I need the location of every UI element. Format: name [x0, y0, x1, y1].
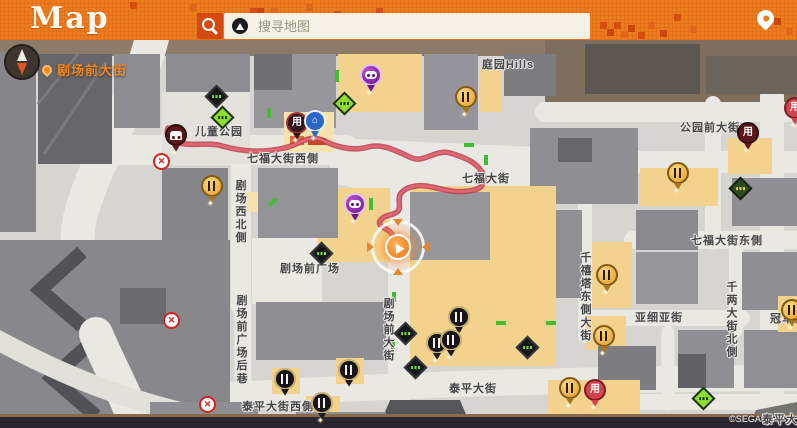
street-label: 公园前大街	[680, 119, 740, 135]
street-label: 千禧塔东側大街	[577, 252, 593, 343]
street-label: 七福大街东側	[691, 232, 763, 248]
street-pin-icon	[40, 62, 54, 76]
shop-pin[interactable]: 用✦	[737, 122, 759, 156]
minigame-pin[interactable]: ✦	[360, 64, 382, 98]
current-street-label: 剧场前大街	[57, 60, 127, 79]
street-label: 泰平大街	[449, 380, 497, 396]
header-bar: Map	[0, 0, 797, 40]
triangle-button-icon	[232, 18, 248, 34]
player-tri-west	[367, 242, 374, 252]
street-label: 剧场前大街	[380, 298, 396, 363]
compass-needle-south	[17, 63, 27, 75]
info-sign[interactable]	[691, 386, 715, 410]
compass-icon[interactable]	[4, 44, 40, 80]
street-label: 剧场西北側	[232, 180, 248, 245]
info-sign[interactable]	[403, 355, 427, 379]
street-label: 剧场前广场后巷	[233, 295, 249, 386]
restaurant-pin[interactable]: ✦	[596, 264, 618, 298]
map-app: { "header": { "title": "Map", "search_pl…	[0, 0, 797, 428]
current-street-indicator: 剧场前大街	[42, 60, 127, 79]
compass-needle-north	[17, 49, 27, 61]
player-tri-east	[422, 242, 429, 252]
restaurant-pin[interactable]: ✦	[667, 162, 689, 196]
page-title: Map	[30, 1, 110, 36]
info-sign[interactable]	[332, 91, 356, 115]
restaurant-pin[interactable]: ✦	[455, 86, 477, 120]
pixel-decoration	[600, 22, 607, 29]
search-icon-handle	[211, 28, 218, 35]
player-position-icon	[385, 234, 411, 260]
no-entry-icon: ✕	[199, 396, 216, 413]
street-label: 七福大街	[462, 170, 510, 186]
shop-pin[interactable]: 用✦	[784, 97, 797, 131]
minigame-pin[interactable]: ✦	[344, 193, 366, 227]
street-label: 泰平大	[762, 411, 797, 427]
player-marker	[371, 220, 425, 274]
street-label: 七福大街西側	[247, 150, 319, 166]
info-sign[interactable]	[515, 335, 539, 359]
restaurant-pin[interactable]: ✦	[559, 377, 581, 411]
map-pin-icon[interactable]	[753, 6, 777, 30]
restaurant-pin-dark[interactable]: ✦	[311, 392, 333, 426]
street-label: 千两大街北側	[723, 281, 739, 359]
copyright-text: ©SEGA	[729, 414, 761, 424]
restaurant-pin[interactable]: ✦	[201, 175, 223, 209]
taxi-pin[interactable]: ✦	[165, 124, 187, 158]
info-sign[interactable]	[728, 176, 752, 200]
restaurant-pin[interactable]: ✦	[781, 299, 797, 333]
street-label: 剧场前广场	[280, 260, 340, 276]
player-tri-north	[393, 219, 403, 226]
player-tri-south	[393, 268, 403, 275]
search-button[interactable]	[197, 13, 223, 39]
restaurant-pin-dark[interactable]: ✦	[338, 359, 360, 393]
street-label: 庭园Hills	[482, 56, 534, 72]
info-sign[interactable]	[393, 321, 417, 345]
info-sign[interactable]	[204, 84, 228, 108]
restaurant-pin-dark[interactable]: ✦	[274, 368, 296, 402]
restaurant-pin-dark[interactable]: ✦	[440, 329, 462, 363]
street-label: 亚细亚街	[635, 309, 683, 325]
restaurant-pin[interactable]: ✦	[593, 325, 615, 359]
no-entry-icon: ✕	[163, 312, 180, 329]
shop-pin[interactable]: 用✦	[584, 379, 606, 413]
search-input[interactable]	[224, 13, 590, 39]
facility-pin[interactable]: ⌂✦	[304, 110, 326, 144]
